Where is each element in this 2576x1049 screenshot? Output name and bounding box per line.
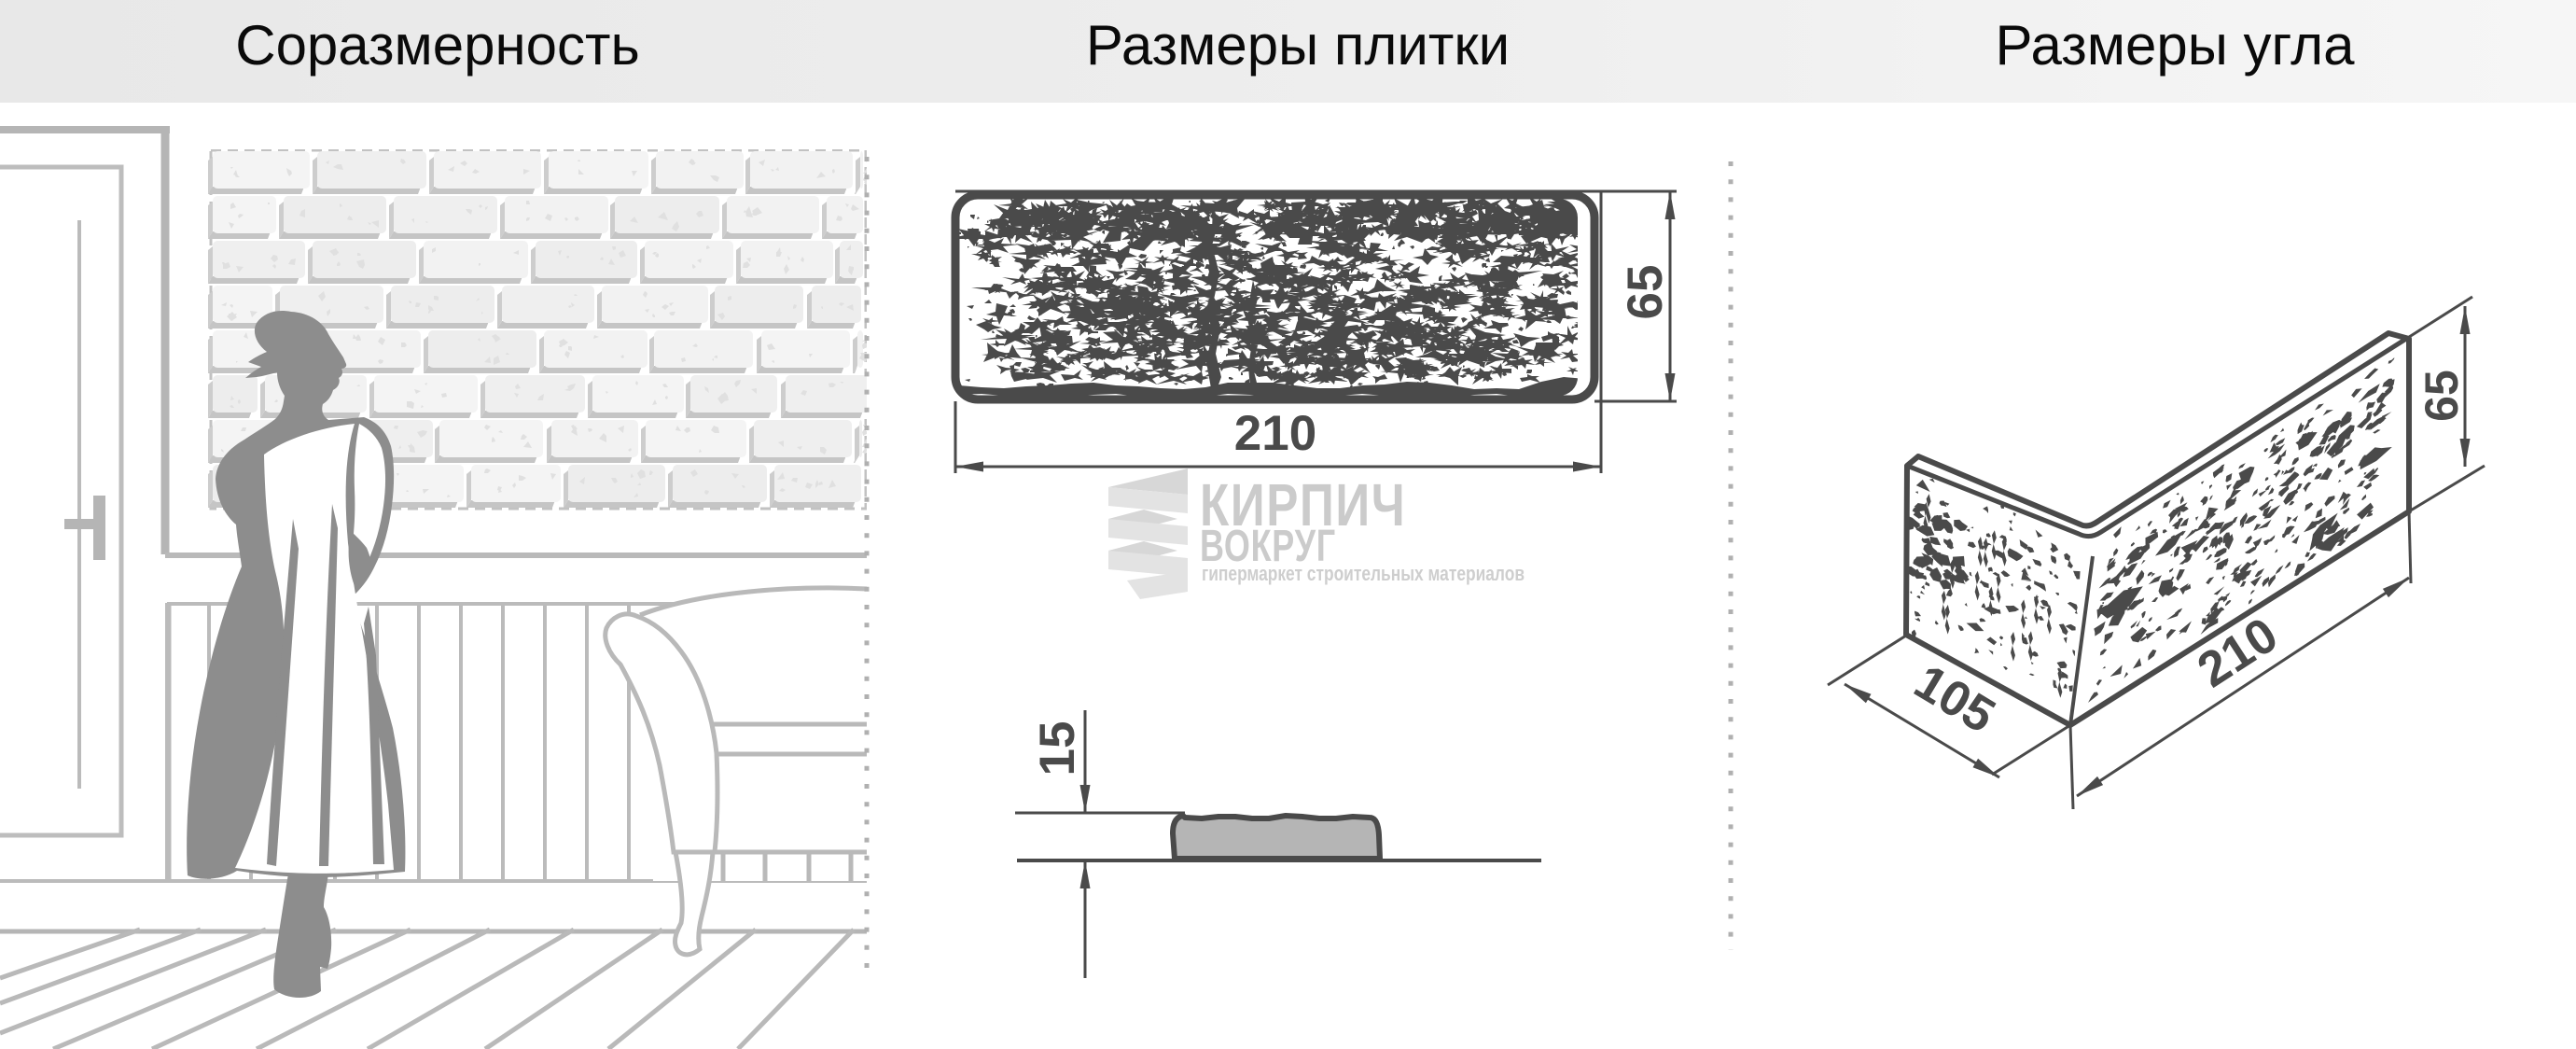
svg-text:65: 65	[1618, 265, 1673, 320]
svg-text:210: 210	[1234, 406, 1316, 461]
svg-text:15: 15	[1030, 721, 1085, 776]
svg-text:гипермаркет строительных матер: гипермаркет строительных материалов	[1202, 563, 1525, 585]
svg-text:Размеры плитки: Размеры плитки	[1086, 14, 1510, 77]
svg-text:Соразмерность: Соразмерность	[235, 14, 640, 77]
svg-text:65: 65	[2416, 370, 2468, 422]
svg-text:Размеры угла: Размеры угла	[1996, 14, 2356, 77]
